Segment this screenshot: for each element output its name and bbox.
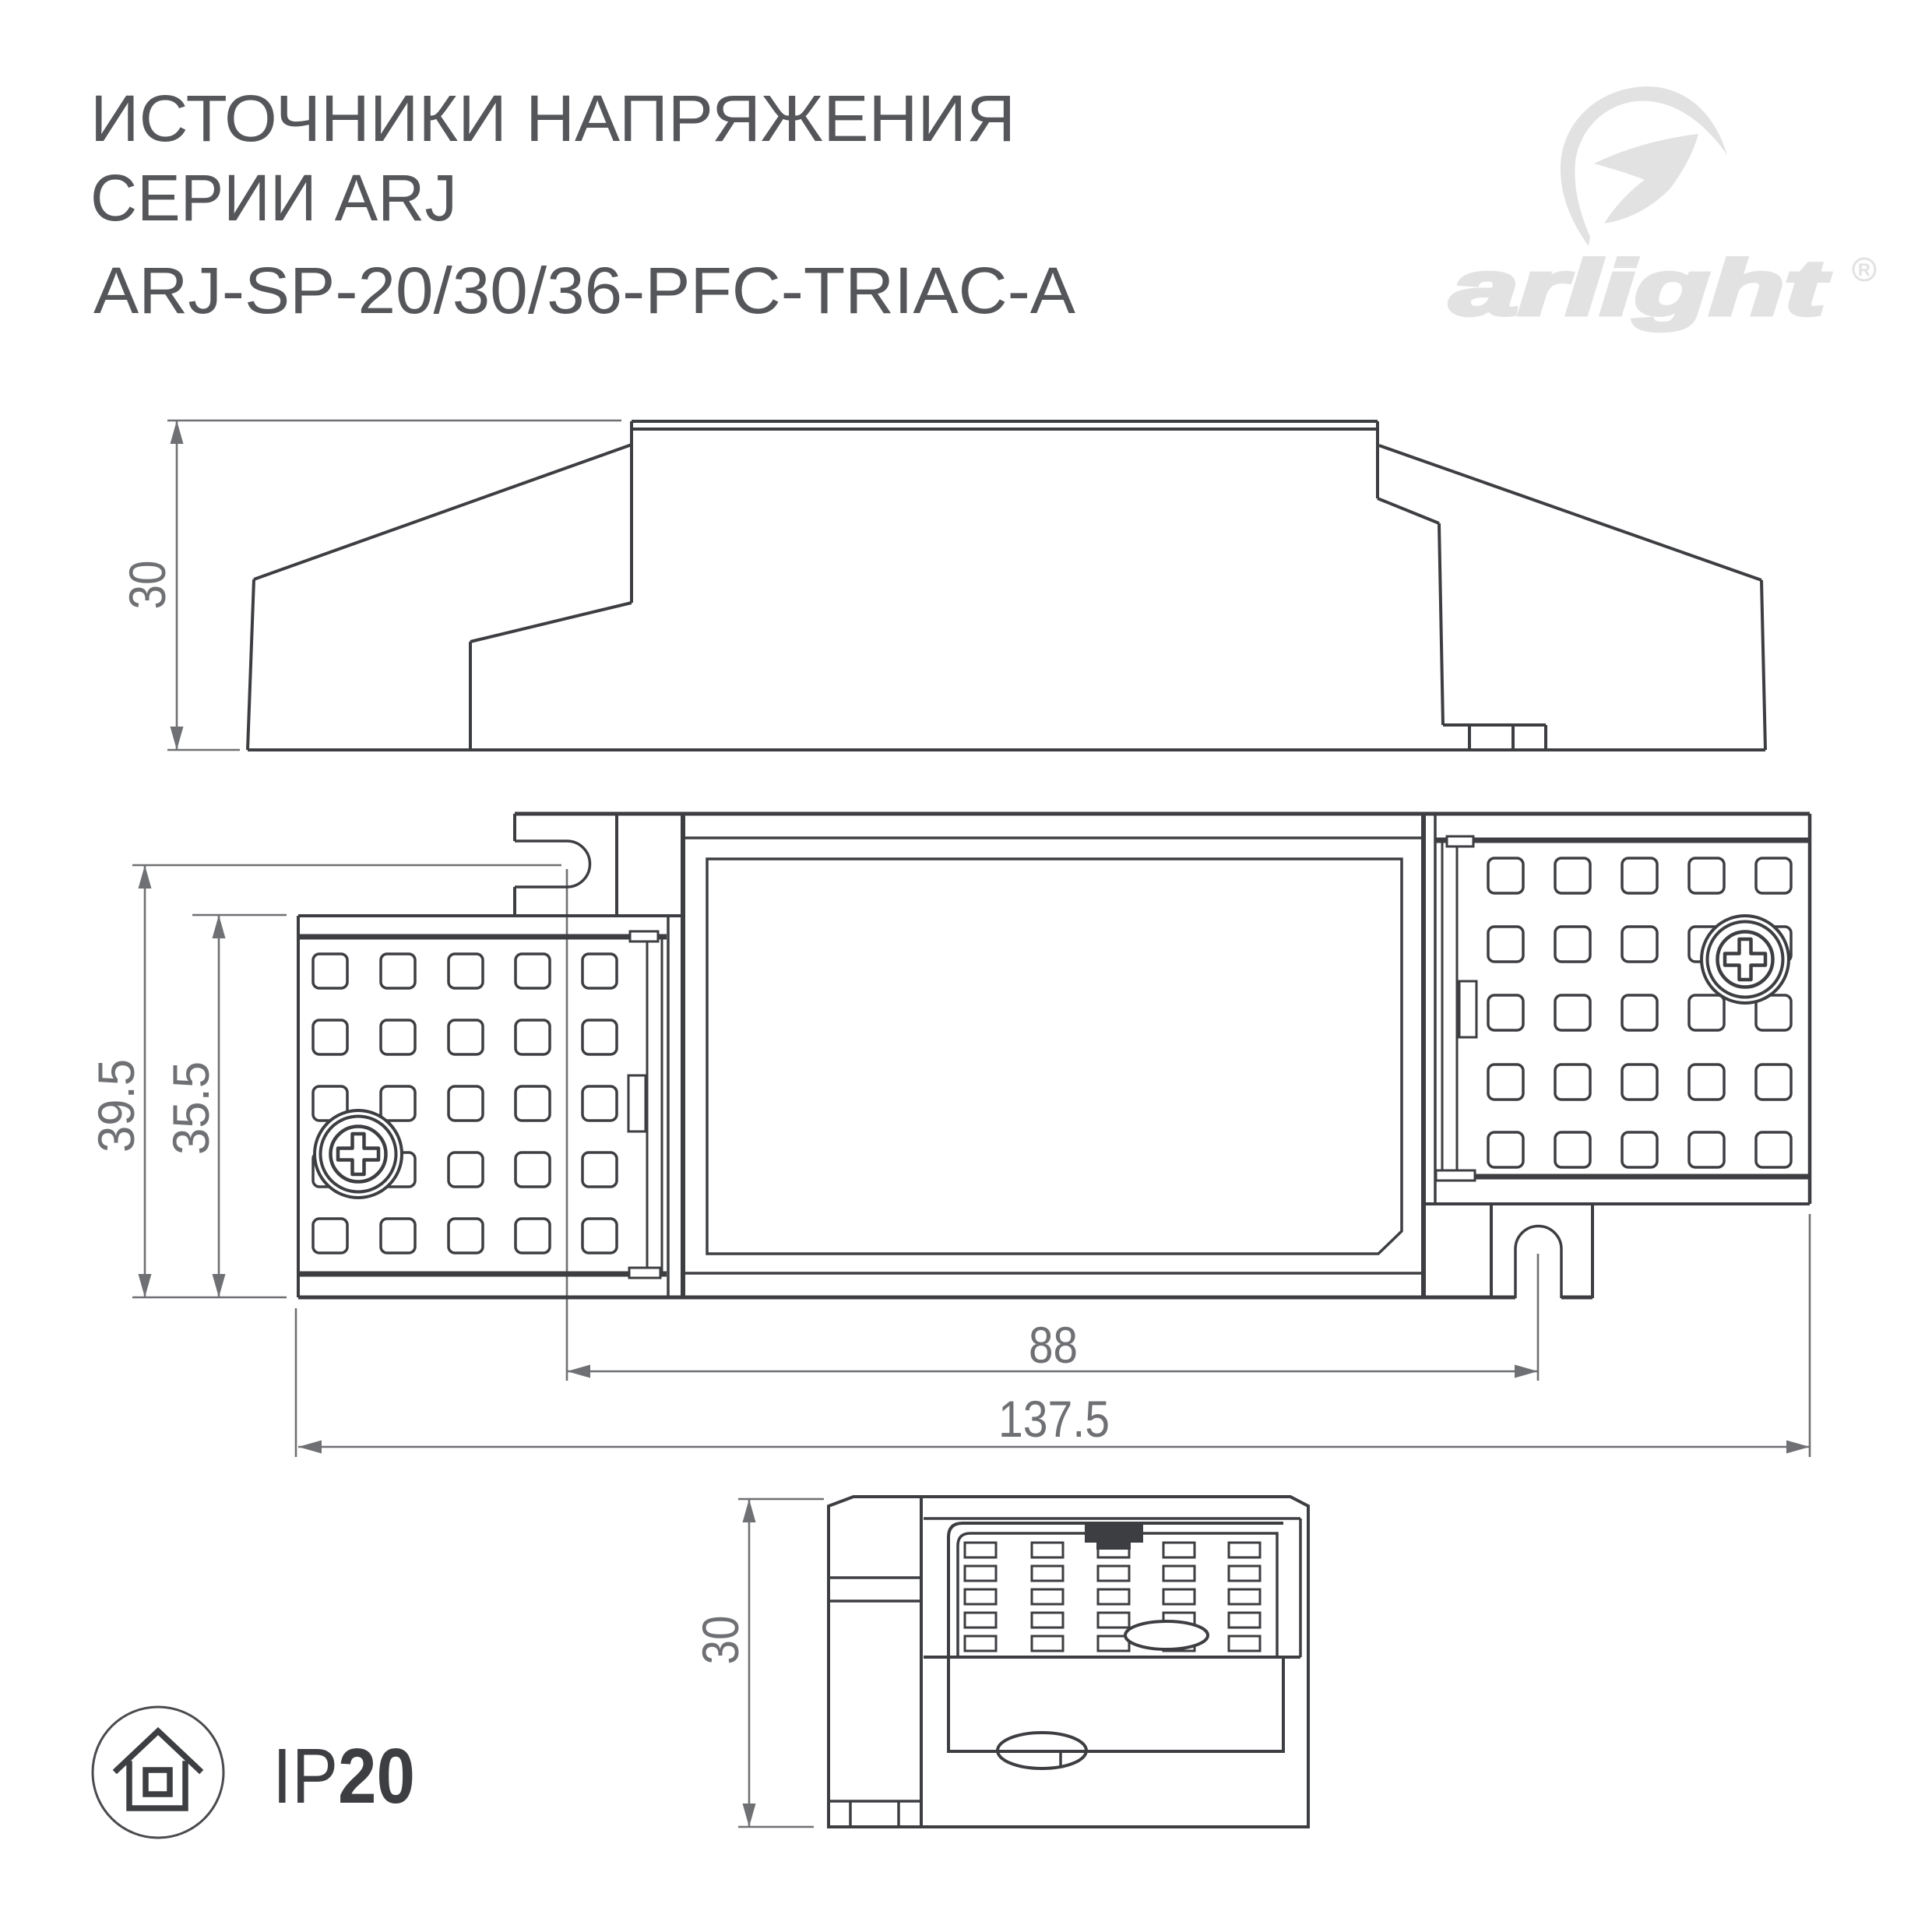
svg-text:arlight: arlight bbox=[1450, 245, 1830, 332]
svg-text:35.5: 35.5 bbox=[162, 1061, 220, 1155]
svg-text:IP20: IP20 bbox=[273, 1733, 415, 1820]
svg-text:ARJ-SP-20/30/36-PFC-TRIAC-A: ARJ-SP-20/30/36-PFC-TRIAC-A bbox=[93, 254, 1075, 327]
svg-text:137.5: 137.5 bbox=[998, 1390, 1110, 1448]
svg-text:R: R bbox=[1858, 260, 1870, 280]
svg-text:88: 88 bbox=[1029, 1316, 1078, 1374]
svg-text:30: 30 bbox=[692, 1616, 749, 1665]
svg-text:СЕРИИ ARJ: СЕРИИ ARJ bbox=[90, 161, 457, 234]
svg-text:ИСТОЧНИКИ НАПРЯЖЕНИЯ: ИСТОЧНИКИ НАПРЯЖЕНИЯ bbox=[90, 82, 1015, 155]
svg-text:39.5: 39.5 bbox=[87, 1059, 145, 1153]
svg-text:30: 30 bbox=[118, 561, 176, 610]
